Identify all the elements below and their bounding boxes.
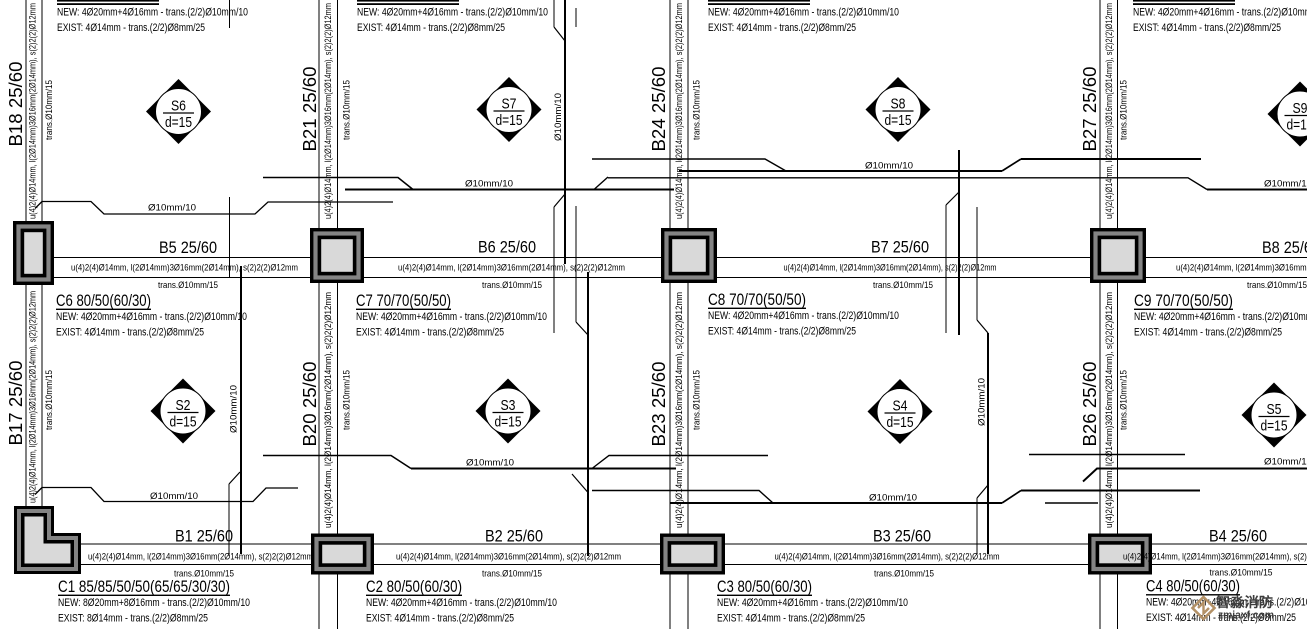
- svg-text:trans.Ø10mm/15: trans.Ø10mm/15: [874, 569, 934, 580]
- svg-text:S3: S3: [501, 397, 516, 414]
- svg-text:B23 25/60: B23 25/60: [648, 362, 669, 447]
- svg-text:智淼消防: 智淼消防: [1216, 594, 1274, 610]
- svg-text:trans.Ø10mm/15: trans.Ø10mm/15: [482, 280, 542, 291]
- svg-text:Ø10mm/10: Ø10mm/10: [553, 93, 564, 141]
- svg-text:u(4)2(4)Ø14mm, l(2Ø14mm)3Ø16mm: u(4)2(4)Ø14mm, l(2Ø14mm)3Ø16mm(2Ø14mm), …: [674, 3, 685, 219]
- svg-text:trans.Ø10mm/15: trans.Ø10mm/15: [1119, 370, 1130, 430]
- svg-text:NEW: 4Ø20mm+4Ø16mm - trans.(2/: NEW: 4Ø20mm+4Ø16mm - trans.(2/2)Ø10mm/10: [57, 7, 248, 19]
- svg-text:B18 25/60: B18 25/60: [5, 62, 26, 147]
- svg-text:B20 25/60: B20 25/60: [299, 362, 320, 447]
- svg-text:EXIST: 4Ø14mm - trans.(2/2)Ø8m: EXIST: 4Ø14mm - trans.(2/2)Ø8mm/25: [357, 22, 505, 34]
- svg-text:trans.Ø10mm/15: trans.Ø10mm/15: [692, 370, 703, 430]
- svg-text:trans.Ø10mm/15: trans.Ø10mm/15: [342, 370, 353, 430]
- svg-text:trans.Ø10mm/15: trans.Ø10mm/15: [342, 80, 353, 140]
- svg-text:B4 25/60: B4 25/60: [1209, 527, 1267, 546]
- svg-text:EXIST: 4Ø14mm - trans.(2/2)Ø8m: EXIST: 4Ø14mm - trans.(2/2)Ø8mm/25: [717, 613, 865, 625]
- svg-text:C9 70/70(50/50): C9 70/70(50/50): [1134, 292, 1233, 310]
- svg-text:Ø10mm/10: Ø10mm/10: [1264, 179, 1307, 190]
- svg-text:B7 25/60: B7 25/60: [871, 238, 929, 257]
- svg-text:trans.Ø10mm/15: trans.Ø10mm/15: [482, 569, 542, 580]
- svg-text:EXIST: 4Ø14mm - trans.(2/2)Ø8m: EXIST: 4Ø14mm - trans.(2/2)Ø8mm/25: [366, 613, 514, 625]
- svg-text:u(4)2(4)Ø14mm, l(2Ø14mm)3Ø16mm: u(4)2(4)Ø14mm, l(2Ø14mm)3Ø16mm(2Ø14mm), …: [28, 3, 39, 219]
- svg-text:zmjaxf.com: zmjaxf.com: [1218, 610, 1274, 622]
- svg-text:EXIST: 4Ø14mm - trans.(2/2)Ø8m: EXIST: 4Ø14mm - trans.(2/2)Ø8mm/25: [56, 327, 204, 339]
- svg-text:d=15: d=15: [1261, 418, 1288, 435]
- svg-text:u(4)2(4)Ø14mm, l(2Ø14mm)3Ø16mm: u(4)2(4)Ø14mm, l(2Ø14mm)3Ø16mm(2Ø14mm), …: [398, 263, 625, 274]
- svg-text:C1 85/85/50/50(65/65/30/30): C1 85/85/50/50(65/65/30/30): [58, 578, 230, 596]
- svg-text:NEW: 4Ø20mm+4Ø16mm - trans.(2/: NEW: 4Ø20mm+4Ø16mm - trans.(2/2)Ø10mm/10: [357, 7, 548, 19]
- svg-text:trans.Ø10mm/15: trans.Ø10mm/15: [1119, 80, 1130, 140]
- svg-text:C6 80/50(60/30): C6 80/50(60/30): [56, 292, 151, 310]
- svg-text:u(4)2(4)Ø14mm, l(2Ø14mm)3Ø16mm: u(4)2(4)Ø14mm, l(2Ø14mm)3Ø16mm(2Ø14mm), …: [1123, 552, 1307, 563]
- svg-text:C3 80/50(60/30): C3 80/50(60/30): [717, 578, 812, 596]
- svg-text:S9: S9: [1293, 100, 1307, 117]
- svg-text:B1 25/60: B1 25/60: [175, 527, 233, 546]
- svg-text:u(4)2(4)Ø14mm, l(2Ø14mm)3Ø16mm: u(4)2(4)Ø14mm, l(2Ø14mm)3Ø16mm(2Ø14mm), …: [323, 3, 334, 219]
- svg-text:NEW: 4Ø20mm+4Ø16mm - trans.(2/: NEW: 4Ø20mm+4Ø16mm - trans.(2/2)Ø10mm/10: [717, 597, 908, 609]
- svg-text:EXIST: 4Ø14mm - trans.(2/2)Ø8m: EXIST: 4Ø14mm - trans.(2/2)Ø8mm/25: [708, 22, 856, 34]
- svg-text:trans.Ø10mm/15: trans.Ø10mm/15: [692, 80, 703, 140]
- svg-text:B2 25/60: B2 25/60: [485, 527, 543, 546]
- svg-text:EXIST: 4Ø14mm - trans.(2/2)Ø8m: EXIST: 4Ø14mm - trans.(2/2)Ø8mm/25: [57, 22, 205, 34]
- svg-text:trans.Ø10mm/15: trans.Ø10mm/15: [873, 280, 933, 291]
- svg-text:trans.Ø10mm/15: trans.Ø10mm/15: [44, 80, 55, 140]
- svg-text:B6 25/60: B6 25/60: [478, 238, 536, 257]
- svg-text:B21 25/60: B21 25/60: [299, 67, 320, 152]
- svg-text:d=15: d=15: [170, 414, 197, 431]
- svg-text:Ø10mm/10: Ø10mm/10: [865, 161, 913, 172]
- svg-text:NEW: 4Ø20mm+4Ø16mm - trans.(2/: NEW: 4Ø20mm+4Ø16mm - trans.(2/2)Ø10mm/10: [356, 311, 547, 323]
- svg-text:NEW: 4Ø20mm+4Ø16mm - trans.(2/: NEW: 4Ø20mm+4Ø16mm - trans.(2/2)Ø10mm/10: [708, 310, 899, 322]
- svg-text:NEW: 8Ø20mm+8Ø16mm - trans.(2/: NEW: 8Ø20mm+8Ø16mm - trans.(2/2)Ø10mm/10: [58, 597, 250, 609]
- svg-text:Ø10mm/10: Ø10mm/10: [977, 378, 988, 426]
- svg-text:B5 25/60: B5 25/60: [159, 238, 217, 257]
- svg-text:d=15: d=15: [1287, 117, 1307, 134]
- svg-text:d=15: d=15: [165, 114, 192, 131]
- svg-text:EXIST: 4Ø14mm - trans.(2/2)Ø8m: EXIST: 4Ø14mm - trans.(2/2)Ø8mm/25: [356, 327, 504, 339]
- svg-text:NEW: 4Ø20mm+4Ø16mm - trans.(2/: NEW: 4Ø20mm+4Ø16mm - trans.(2/2)Ø10mm/10: [1133, 7, 1307, 19]
- svg-text:Ø10mm/10: Ø10mm/10: [229, 385, 240, 433]
- svg-text:Ø10mm/10: Ø10mm/10: [148, 203, 196, 214]
- svg-text:S8: S8: [891, 96, 906, 113]
- svg-text:u(4)2(4)Ø14mm, l(2Ø14mm)3Ø16mm: u(4)2(4)Ø14mm, l(2Ø14mm)3Ø16mm(2Ø14mm), …: [1104, 292, 1115, 528]
- svg-text:S7: S7: [502, 96, 517, 113]
- svg-text:Ø10mm/10: Ø10mm/10: [1264, 457, 1307, 468]
- svg-text:S2: S2: [176, 397, 191, 414]
- svg-text:u(4)2(4)Ø14mm, l(2Ø14mm)3Ø16mm: u(4)2(4)Ø14mm, l(2Ø14mm)3Ø16mm(2Ø14mm), …: [784, 263, 997, 274]
- svg-text:u(4)2(4)Ø14mm, l(2Ø14mm)3Ø16mm: u(4)2(4)Ø14mm, l(2Ø14mm)3Ø16mm(2Ø14mm), …: [323, 292, 334, 528]
- svg-text:u(4)2(4)Ø14mm, l(2Ø14mm)3Ø16mm: u(4)2(4)Ø14mm, l(2Ø14mm)3Ø16mm(2Ø14mm), …: [1104, 3, 1115, 219]
- svg-text:B24 25/60: B24 25/60: [648, 67, 669, 152]
- svg-text:d=15: d=15: [496, 112, 523, 129]
- svg-text:Ø10mm/10: Ø10mm/10: [869, 493, 917, 504]
- svg-text:trans.Ø10mm/15: trans.Ø10mm/15: [158, 280, 218, 291]
- svg-text:d=15: d=15: [887, 414, 914, 431]
- svg-text:C4 80/50(60/30): C4 80/50(60/30): [1146, 578, 1240, 596]
- svg-text:B3 25/60: B3 25/60: [873, 527, 931, 546]
- svg-text:B17 25/60: B17 25/60: [5, 361, 26, 446]
- svg-text:B8 25/60: B8 25/60: [1262, 238, 1307, 257]
- svg-text:EXIST: 4Ø14mm - trans.(2/2)Ø8m: EXIST: 4Ø14mm - trans.(2/2)Ø8mm/25: [708, 326, 856, 338]
- svg-text:C7 70/70(50/50): C7 70/70(50/50): [356, 292, 451, 310]
- svg-text:u(4)2(4)Ø14mm, l(2Ø14mm)3Ø16mm: u(4)2(4)Ø14mm, l(2Ø14mm)3Ø16mm(2Ø14mm), …: [1176, 263, 1307, 274]
- svg-text:d=15: d=15: [495, 414, 522, 431]
- svg-text:C8 70/70(50/50): C8 70/70(50/50): [708, 291, 806, 309]
- svg-text:NEW: 4Ø20mm+4Ø16mm - trans.(2/: NEW: 4Ø20mm+4Ø16mm - trans.(2/2)Ø10mm/10: [56, 311, 247, 323]
- svg-text:u(4)2(4)Ø14mm, l(2Ø14mm)3Ø16mm: u(4)2(4)Ø14mm, l(2Ø14mm)3Ø16mm(2Ø14mm), …: [28, 291, 39, 503]
- svg-text:Ø10mm/10: Ø10mm/10: [150, 491, 198, 502]
- svg-text:trans.Ø10mm/15: trans.Ø10mm/15: [1247, 280, 1307, 291]
- svg-text:S5: S5: [1267, 401, 1282, 418]
- svg-text:C2 80/50(60/30): C2 80/50(60/30): [366, 578, 462, 596]
- svg-text:Ø10mm/10: Ø10mm/10: [466, 458, 514, 469]
- svg-text:NEW: 4Ø20mm+4Ø16mm - trans.(2/: NEW: 4Ø20mm+4Ø16mm - trans.(2/2)Ø10mm/10: [708, 7, 899, 19]
- svg-text:EXIST: 4Ø14mm - trans.(2/2)Ø8m: EXIST: 4Ø14mm - trans.(2/2)Ø8mm/25: [1133, 22, 1281, 34]
- svg-text:u(4)2(4)Ø14mm, l(2Ø14mm)3Ø16mm: u(4)2(4)Ø14mm, l(2Ø14mm)3Ø16mm(2Ø14mm), …: [396, 552, 621, 563]
- svg-text:NEW: 4Ø20mm+4Ø16mm - trans.(2/: NEW: 4Ø20mm+4Ø16mm - trans.(2/2)Ø10mm/10: [366, 597, 557, 609]
- svg-text:d=15: d=15: [885, 112, 912, 129]
- svg-text:EXIST: 8Ø14mm - trans.(2/2)Ø8m: EXIST: 8Ø14mm - trans.(2/2)Ø8mm/25: [58, 613, 208, 625]
- svg-text:u(4)2(4)Ø14mm, l(2Ø14mm)3Ø16mm: u(4)2(4)Ø14mm, l(2Ø14mm)3Ø16mm(2Ø14mm), …: [674, 292, 685, 528]
- svg-text:B26 25/60: B26 25/60: [1079, 362, 1100, 447]
- svg-text:u(4)2(4)Ø14mm, l(2Ø14mm)3Ø16mm: u(4)2(4)Ø14mm, l(2Ø14mm)3Ø16mm(2Ø14mm), …: [88, 552, 313, 563]
- svg-text:trans.Ø10mm/15: trans.Ø10mm/15: [44, 370, 55, 430]
- svg-text:S4: S4: [893, 398, 908, 415]
- svg-text:NEW: 4Ø20mm+4Ø16mm - trans.(2/: NEW: 4Ø20mm+4Ø16mm - trans.(2/2)Ø10mm/10: [1134, 311, 1307, 323]
- svg-text:EXIST: 4Ø14mm - trans.(2/2)Ø8m: EXIST: 4Ø14mm - trans.(2/2)Ø8mm/25: [1134, 327, 1282, 339]
- svg-text:S6: S6: [171, 98, 186, 115]
- svg-text:u(4)2(4)Ø14mm, l(2Ø14mm)3Ø16mm: u(4)2(4)Ø14mm, l(2Ø14mm)3Ø16mm(2Ø14mm), …: [71, 263, 298, 274]
- svg-text:u(4)2(4)Ø14mm, l(2Ø14mm)3Ø16mm: u(4)2(4)Ø14mm, l(2Ø14mm)3Ø16mm(2Ø14mm), …: [775, 552, 1000, 563]
- svg-text:B27 25/60: B27 25/60: [1079, 67, 1100, 152]
- svg-text:Ø10mm/10: Ø10mm/10: [465, 179, 513, 190]
